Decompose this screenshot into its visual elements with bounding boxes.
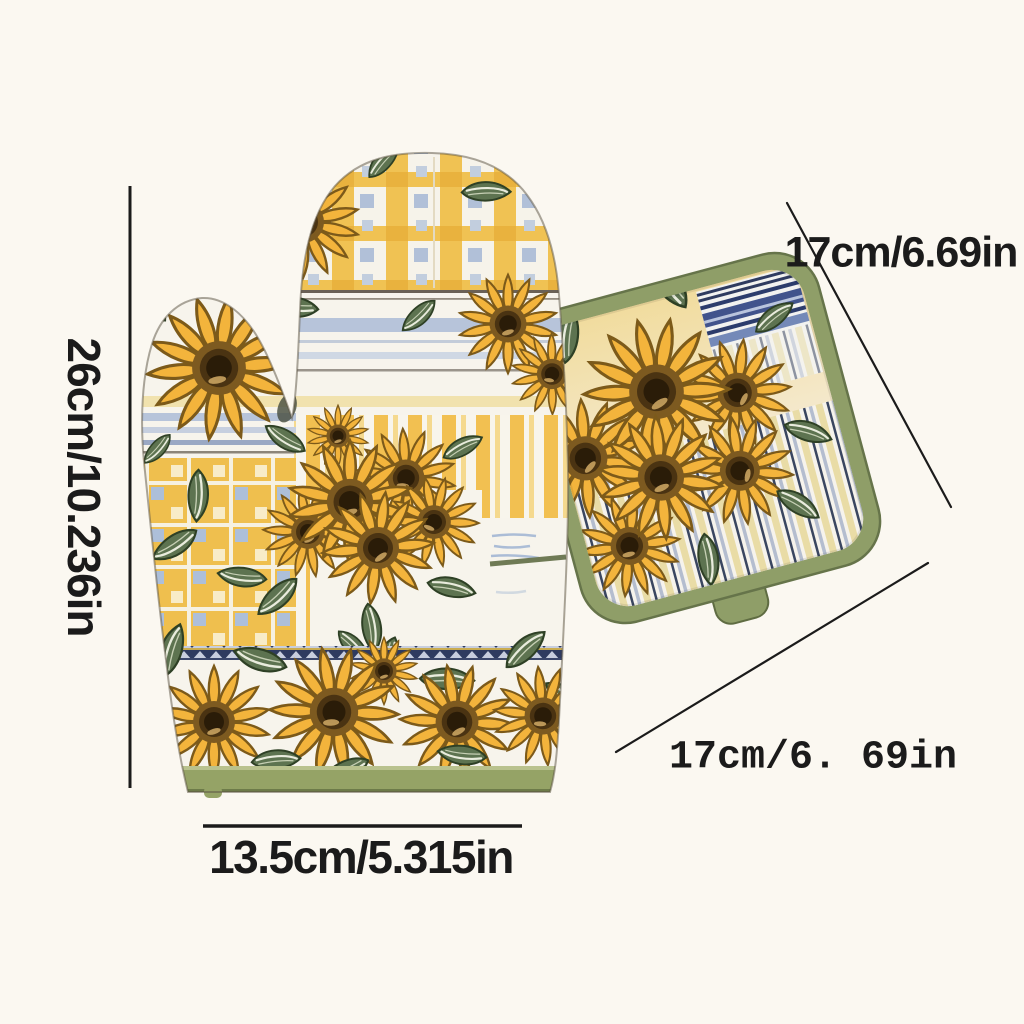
mitt-trim [138, 766, 574, 794]
oven-mitt [130, 141, 606, 798]
mitt-bottom-border [138, 622, 606, 791]
potholder-top-label: 17cm/6.69in [785, 229, 1018, 278]
mitt-height-label: 26cm/10.236in [57, 337, 111, 636]
mitt-width-label: 13.5cm/5.315in [209, 830, 513, 884]
potholder-bottom-label: 17cm/6. 69in [669, 736, 957, 781]
product-size-diagram: 26cm/10.236in 13.5cm/5.315in 17cm/6.69in… [0, 0, 1024, 1024]
